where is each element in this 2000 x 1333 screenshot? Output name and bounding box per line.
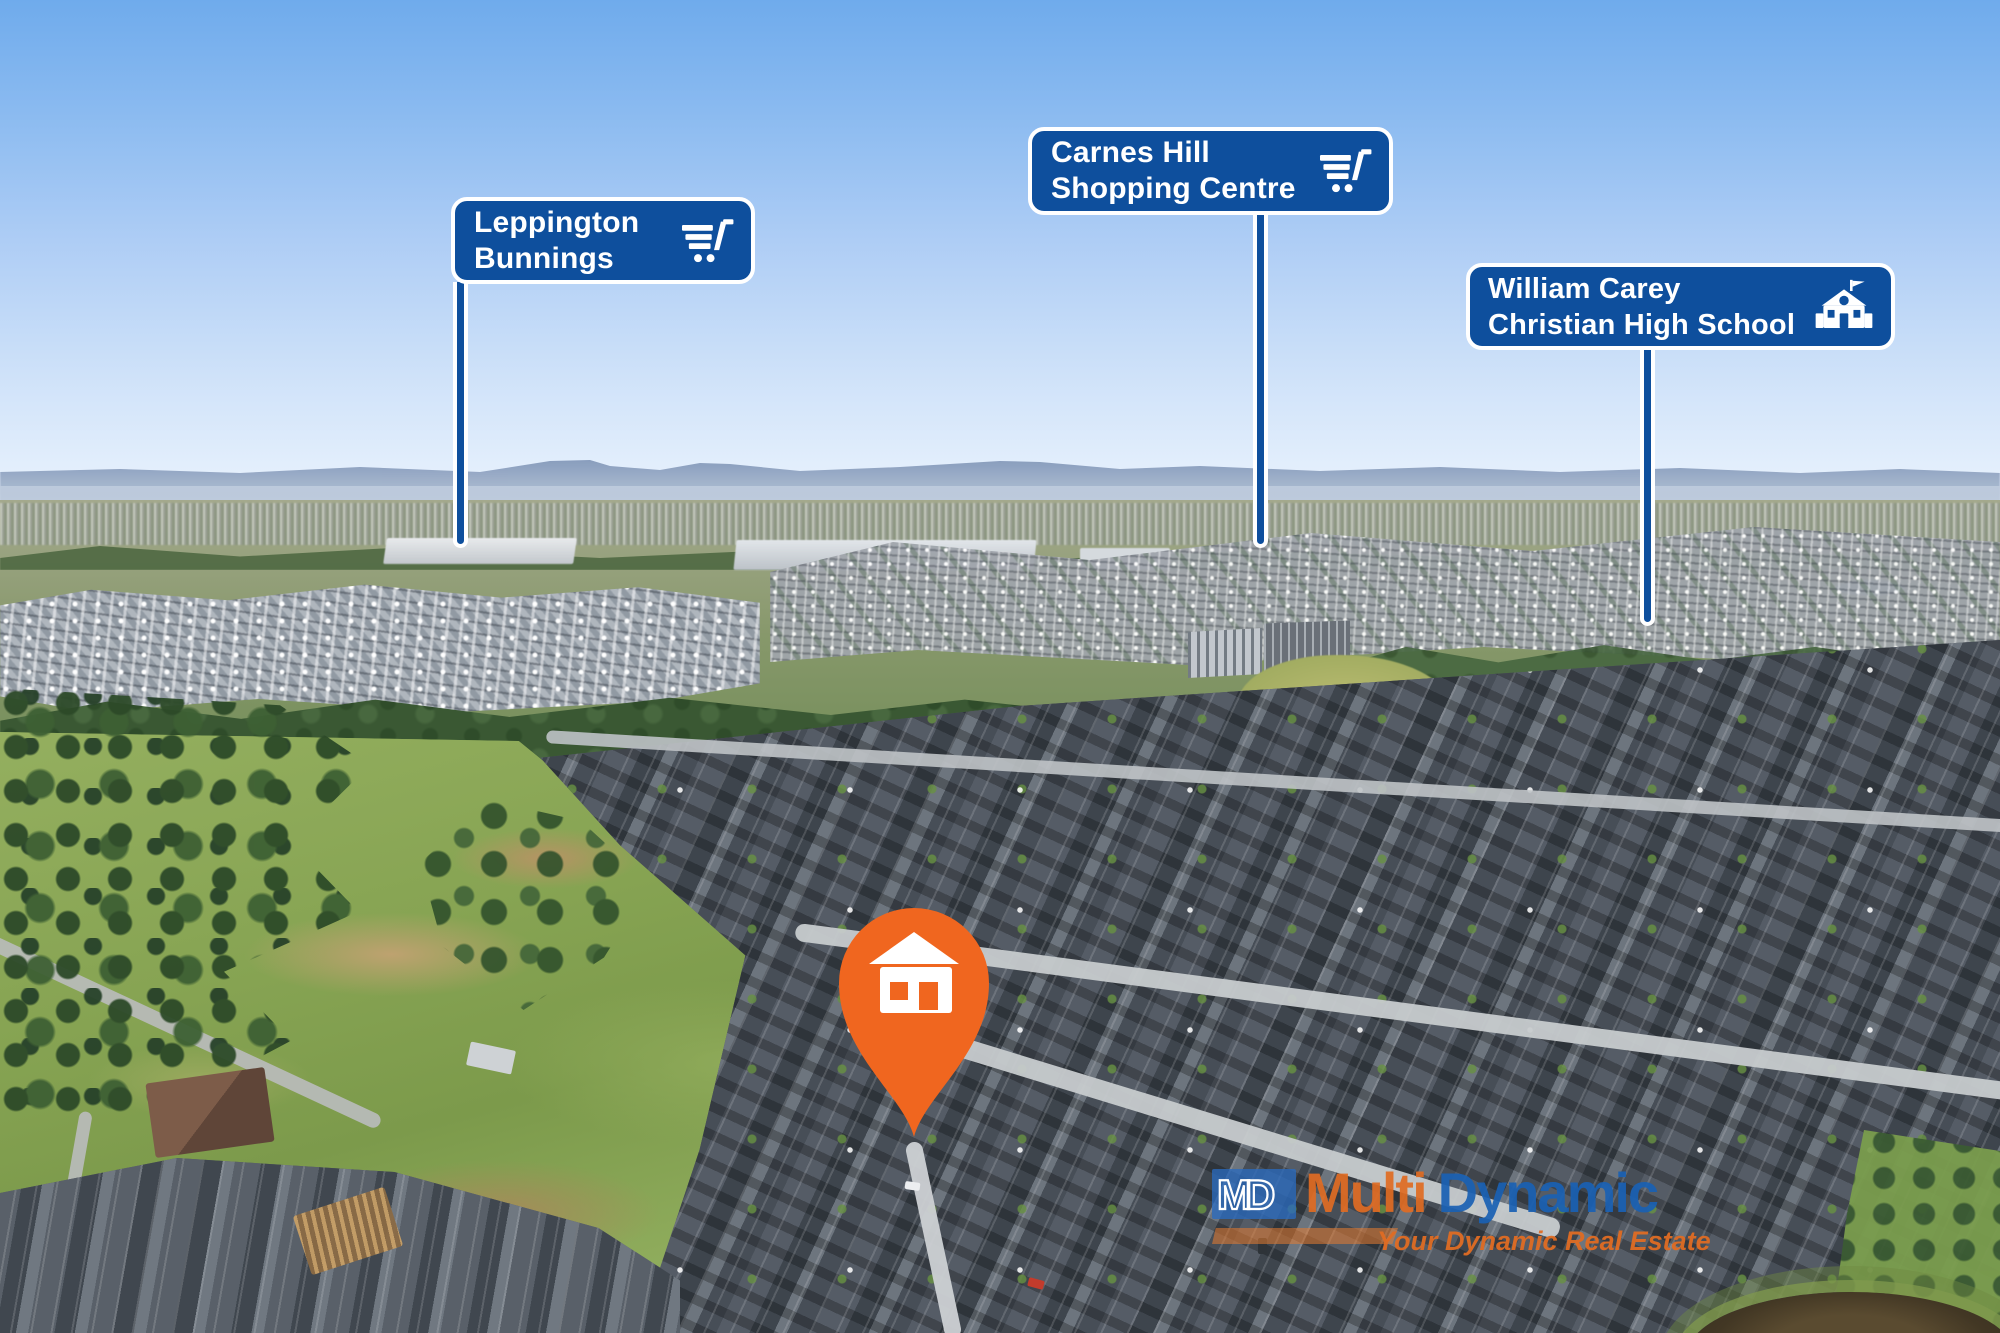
sign-label: William Carey Christian High School	[1470, 271, 1813, 343]
sign-line2: Bunnings	[474, 241, 677, 277]
logo-swoosh	[1212, 1228, 1398, 1244]
sign-carnes-hill-shopping-centre: Carnes Hill Shopping Centre	[1028, 127, 1393, 215]
md-logo: MD	[1212, 1169, 1296, 1219]
shopping-cart-icon	[677, 217, 735, 265]
signpost-line-bunnings	[453, 282, 468, 548]
sign-line2: Shopping Centre	[1051, 171, 1315, 207]
photo-warehouse	[383, 538, 577, 564]
md-monogram-text: MD	[1217, 1171, 1274, 1218]
property-location-pin	[833, 902, 995, 1138]
agency-name-word1: Multi	[1305, 1161, 1426, 1224]
sign-leppington-bunnings: Leppington Bunnings	[451, 197, 755, 284]
sign-line1: William Carey	[1488, 271, 1813, 307]
agency-tagline: Your Dynamic Real Estate	[1377, 1226, 1711, 1257]
agency-name-word2: Dynamic	[1438, 1161, 1657, 1224]
signpost-line-school	[1640, 348, 1655, 626]
sign-william-carey-christian-high-school: William Carey Christian High School	[1466, 263, 1895, 350]
sign-line1: Leppington	[474, 205, 677, 241]
sign-label: Leppington Bunnings	[455, 205, 677, 277]
aerial-photo-scene: MD MultiDynamic Your Dynamic Real Estate…	[0, 0, 2000, 1333]
sign-line2: Christian High School	[1488, 307, 1813, 343]
sign-label: Carnes Hill Shopping Centre	[1032, 135, 1315, 207]
map-pin-icon	[833, 902, 995, 1138]
school-icon	[1813, 279, 1875, 334]
photo-mid-suburb-left	[0, 582, 760, 712]
photo-sky	[0, 0, 2000, 502]
agency-name: MultiDynamic	[1305, 1160, 1657, 1225]
photo-apartment-block	[1188, 628, 1262, 678]
shopping-cart-icon	[1315, 147, 1373, 195]
md-monogram-icon: MD	[1212, 1169, 1296, 1219]
agency-watermark: MD MultiDynamic Your Dynamic Real Estate	[1205, 1158, 1665, 1262]
signpost-line-carnes-hill	[1253, 213, 1268, 548]
sign-line1: Carnes Hill	[1051, 135, 1315, 171]
